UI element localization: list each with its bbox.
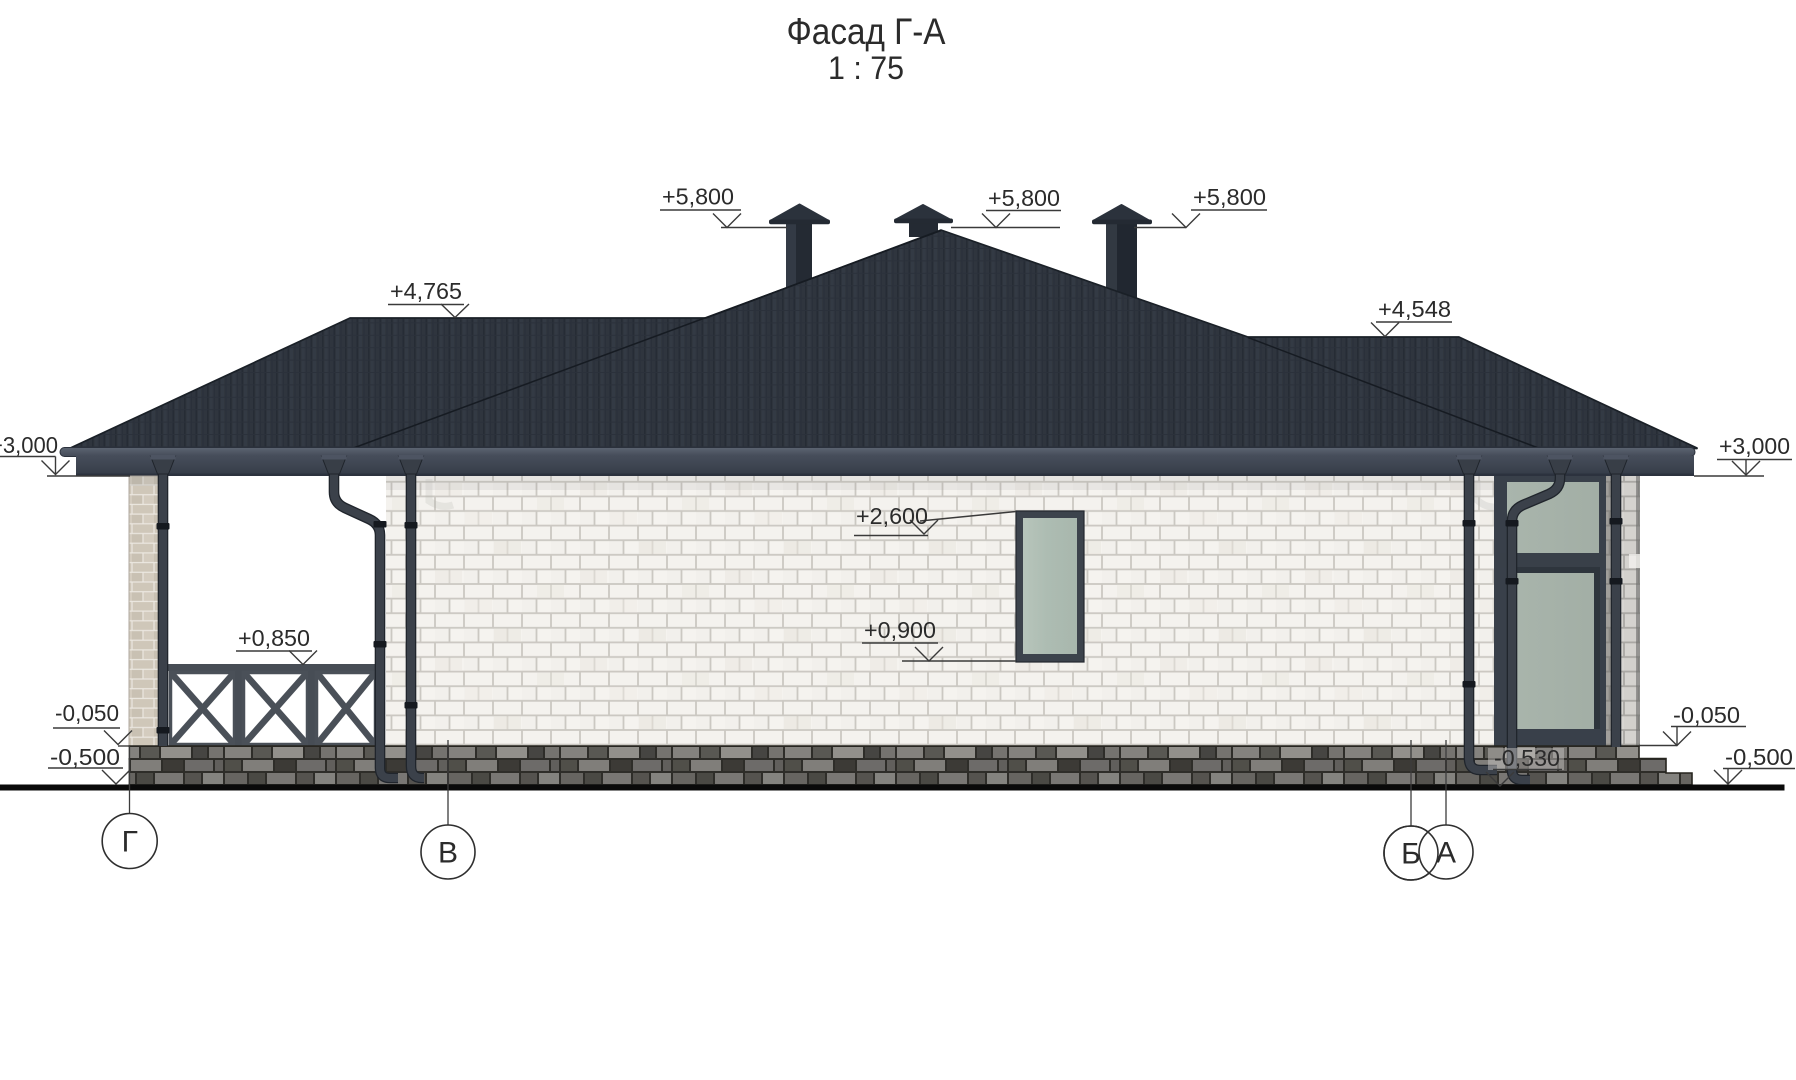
svg-text:+0,850: +0,850 (238, 625, 310, 651)
svg-text:Г: Г (122, 826, 138, 859)
svg-text:+3,000: +3,000 (0, 432, 58, 458)
svg-text:-0,050: -0,050 (1673, 702, 1740, 728)
svg-text:+5,800: +5,800 (988, 185, 1060, 211)
svg-text:-0,500: -0,500 (50, 744, 120, 770)
svg-text:+2,600: +2,600 (856, 503, 928, 529)
svg-text:-0,500: -0,500 (1725, 744, 1793, 770)
svg-text:Фасад Г-А: Фасад Г-А (787, 11, 946, 52)
svg-text:-0,530: -0,530 (1494, 745, 1560, 771)
svg-text:А: А (1436, 837, 1456, 870)
svg-text:+0,900: +0,900 (864, 617, 936, 643)
svg-text:+4,548: +4,548 (1378, 296, 1451, 322)
svg-text:В: В (438, 837, 458, 870)
svg-text:1 : 75: 1 : 75 (828, 50, 904, 86)
svg-text:Б: Б (1401, 838, 1421, 871)
svg-text:-0,050: -0,050 (55, 700, 119, 726)
svg-text:+4,765: +4,765 (390, 278, 462, 304)
svg-text:+5,800: +5,800 (662, 184, 734, 210)
svg-text:+5,800: +5,800 (1193, 184, 1266, 210)
svg-text:+3,000: +3,000 (1719, 433, 1790, 459)
